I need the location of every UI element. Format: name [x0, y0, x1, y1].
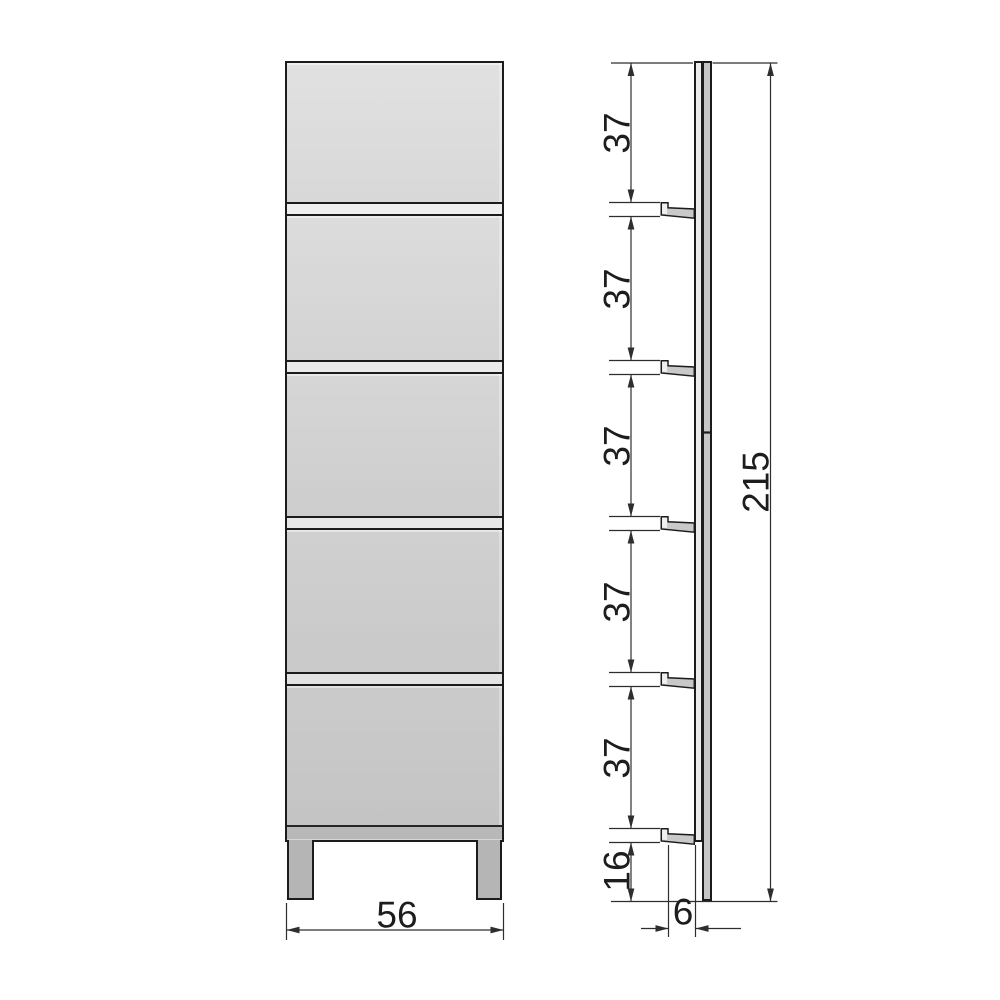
- wall-hook-2: [661, 361, 694, 376]
- depth-dimension-label: 6: [673, 894, 694, 931]
- spacing-dimension-label-1: 37: [599, 112, 636, 153]
- bottom-offset-dimension-label: 16: [599, 850, 636, 891]
- technical-drawing-canvas: 37 37 37 37 37 16 215 56 6: [0, 0, 1000, 1000]
- spacing-dimension-label-4: 37: [599, 581, 636, 622]
- door-divider-1: [287, 202, 502, 216]
- wall-hooks: [661, 203, 694, 844]
- wall-hook-5: [661, 829, 694, 844]
- wall-hook-3: [661, 517, 694, 532]
- door-panel-3: [287, 374, 502, 516]
- base-rail: [287, 825, 502, 839]
- door-panel-4: [287, 530, 502, 672]
- door-divider-4: [287, 672, 502, 686]
- door-divider-2: [287, 360, 502, 374]
- door-divider-3: [287, 516, 502, 530]
- door-panel-1: [287, 63, 502, 202]
- total-height-dimension-label: 215: [738, 451, 775, 513]
- front-view-cabinet: [285, 61, 504, 842]
- door-panel-5: [287, 686, 502, 825]
- front-right-leg: [476, 840, 503, 900]
- door-panel-2: [287, 216, 502, 360]
- spacing-dimension-label-2: 37: [599, 268, 636, 309]
- front-left-leg: [287, 840, 314, 900]
- side-view-back-panel: [702, 61, 712, 901]
- spacing-dimension-label-3: 37: [599, 425, 636, 466]
- wall-hook-1: [661, 203, 694, 218]
- width-dimension-label: 56: [376, 897, 417, 934]
- spacing-dimension-label-5: 37: [599, 737, 636, 778]
- wall-hook-4: [661, 673, 694, 688]
